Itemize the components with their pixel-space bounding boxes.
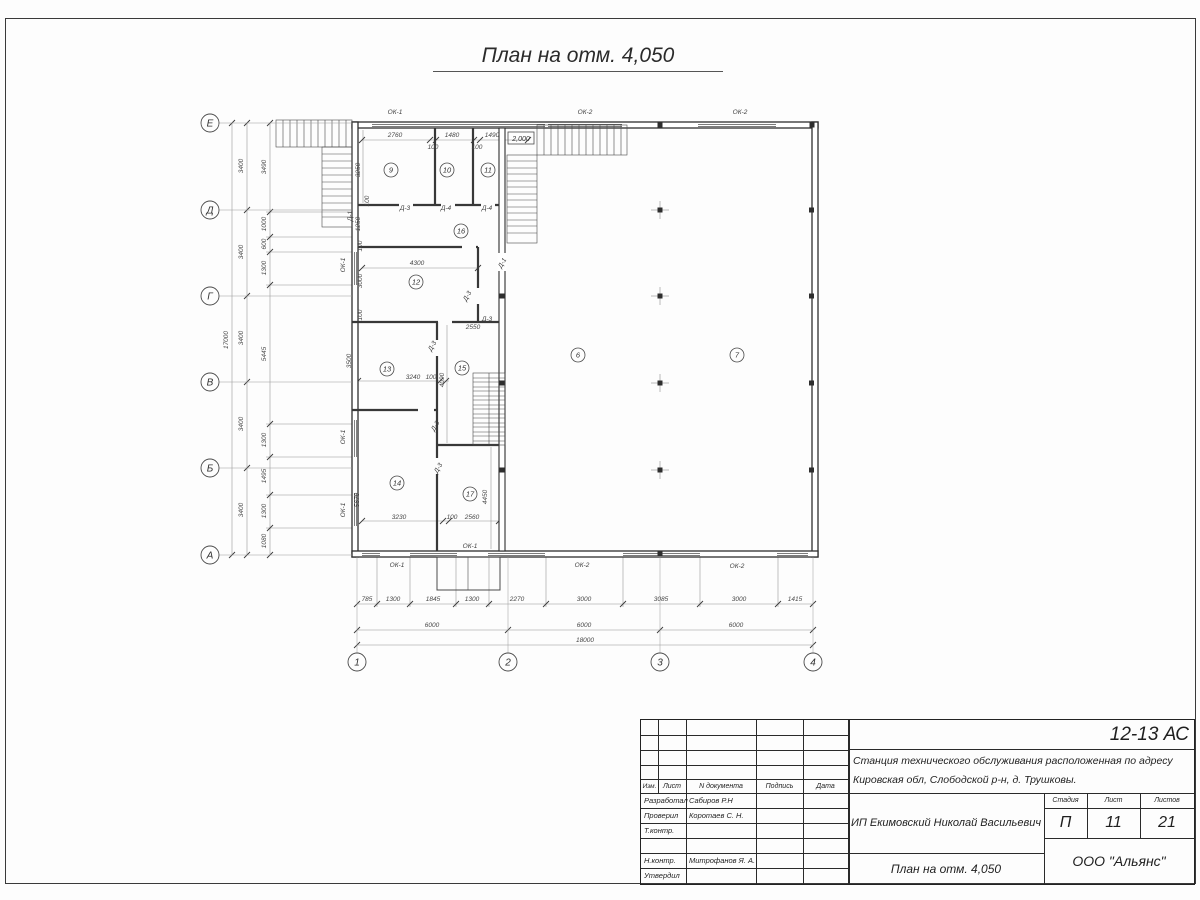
dim-label: 2550 <box>465 324 481 331</box>
dim-label: 3000 <box>732 596 747 603</box>
dim-label: ОК-1 <box>340 429 347 444</box>
dim-label: 3230 <box>392 514 407 521</box>
dim-label: 100 <box>472 144 483 151</box>
dim-label: 5445 <box>261 346 268 361</box>
dim-label: 100 <box>357 240 364 251</box>
tb-company: ООО "Альянс" <box>1044 838 1194 884</box>
axis-number: 4 <box>810 658 816 669</box>
dimension-ticks <box>229 120 816 648</box>
columns <box>500 123 815 556</box>
dim-label: 600 <box>261 238 268 249</box>
tb-doc-line2: Кировская обл, Слободской р-н, д. Трушко… <box>853 770 1191 790</box>
tb-name-0: Сабиров Р.Н <box>689 793 755 808</box>
dim-label: 2560 <box>464 514 480 521</box>
dim-label: 4090 <box>439 372 446 387</box>
dim-label: 1300 <box>261 432 268 447</box>
dim-label: ОК-1 <box>390 562 405 569</box>
room-number: 7 <box>735 351 740 360</box>
dim-label: 6000 <box>729 622 744 629</box>
dim-label: 1415 <box>788 596 803 603</box>
dim-label: ОК-1 <box>463 543 478 550</box>
tb-sheet-number: 11 <box>1087 808 1140 838</box>
dim-label: 3400 <box>238 244 245 259</box>
dim-label: 1300 <box>261 260 268 275</box>
axis-number: 3 <box>657 658 663 669</box>
dim-label: 3240 <box>406 374 421 381</box>
dim-label: Д-3 <box>481 316 493 323</box>
tb-doc-line1: Станция технического обслуживания распол… <box>853 751 1191 771</box>
dim-label: 1300 <box>465 596 480 603</box>
dim-label: Д-3 <box>433 462 445 476</box>
tb-role-2: Т.контр. <box>644 823 686 838</box>
room-number: 13 <box>383 365 392 374</box>
tb-name-2 <box>689 823 755 838</box>
dim-label: ОК-2 <box>575 562 590 569</box>
stair-exterior <box>276 120 352 227</box>
dim-label: 100 <box>447 514 458 521</box>
tb-col-date: Дата <box>803 779 848 793</box>
tb-line <box>803 720 804 884</box>
room-number: 9 <box>389 166 394 175</box>
dim-label: Д-3 <box>427 340 439 354</box>
title-block: Изм. Лист N документа Подпись Дата Разра… <box>640 719 1195 885</box>
room-number: 6 <box>576 351 581 360</box>
dim-label: 100 <box>357 309 364 320</box>
room-number: 14 <box>393 479 401 488</box>
tb-col-izm: Изм. <box>641 779 658 793</box>
dim-label: 3400 <box>238 416 245 431</box>
dim-label: 18000 <box>576 637 594 644</box>
axis-markers: ЕДГВБА1234 <box>201 114 822 671</box>
tb-line <box>641 750 848 751</box>
tb-sheets-total: 21 <box>1140 808 1194 838</box>
dim-label: ОК-2 <box>730 563 745 570</box>
tb-role-0: Разработал <box>644 793 686 808</box>
room-number: 16 <box>457 227 466 236</box>
dim-label: 2270 <box>509 596 525 603</box>
room-number: 10 <box>443 166 452 175</box>
dim-label: 1300 <box>261 503 268 518</box>
dim-label: 1300 <box>386 596 401 603</box>
elevation-mark: 2,000 <box>511 136 530 143</box>
axis-letter: А <box>206 551 214 562</box>
tb-col-list: Лист <box>658 779 686 793</box>
dim-label: 3400 <box>238 330 245 345</box>
room-number: 15 <box>458 364 467 373</box>
dim-label: 2760 <box>387 132 403 139</box>
tb-name-5 <box>689 868 755 883</box>
room-number: 17 <box>466 490 475 499</box>
tb-client: ИП Екимовский Николай Васильевич <box>848 793 1044 853</box>
dim-label: 1490 <box>485 132 500 139</box>
dim-label: Д-4 <box>481 205 493 212</box>
dim-label: 3250 <box>355 162 362 177</box>
tb-drawing-name: План на отм. 4,050 <box>848 853 1044 884</box>
axis-letter: Е <box>207 119 214 130</box>
tb-role-3 <box>644 838 686 853</box>
dim-label: 785 <box>362 596 373 603</box>
dim-label: 3400 <box>238 502 245 517</box>
partitions <box>352 128 499 551</box>
tb-role-5: Утвердил <box>644 868 686 883</box>
dim-label: ОК-1 <box>388 109 403 116</box>
dim-label: Д-3 <box>462 290 474 304</box>
dim-label: 4450 <box>482 489 489 504</box>
axis-letter: Г <box>207 292 214 303</box>
dim-label: 100 <box>428 144 439 151</box>
dim-label: ОК-2 <box>733 109 748 116</box>
dim-label: 4300 <box>410 260 425 267</box>
dim-label: 6000 <box>425 622 440 629</box>
dim-label: 1080 <box>261 533 268 548</box>
tb-stage-label: Стадия <box>1044 793 1087 808</box>
dim-label: 1845 <box>426 596 441 603</box>
axis-letter: Б <box>207 464 214 475</box>
dim-label: 17000 <box>223 331 230 349</box>
dim-label: ОК-1 <box>340 257 347 272</box>
windows <box>353 123 808 556</box>
dim-label: Д-3 <box>399 205 411 212</box>
tb-line <box>756 720 757 884</box>
dim-label: 3000 <box>357 273 364 288</box>
outer-walls <box>352 122 818 557</box>
tb-sheets-label: Листов <box>1140 793 1194 808</box>
dim-label: 1480 <box>445 132 460 139</box>
tb-doc-code: 12-13 АС <box>851 720 1189 749</box>
axis-number: 2 <box>504 658 511 669</box>
dim-label: 1250 <box>355 216 362 231</box>
axis-number: 1 <box>354 658 360 669</box>
room-number: 12 <box>412 278 421 287</box>
tb-stage-value: П <box>1044 808 1087 838</box>
tb-name-3 <box>689 838 755 853</box>
tb-col-ndoc: N документа <box>686 779 756 793</box>
dim-label: 5670 <box>354 492 361 507</box>
dim-label: Д-3 <box>430 420 442 434</box>
inner-wall <box>498 128 507 551</box>
room-number: 11 <box>484 166 492 175</box>
dim-label: 1495 <box>261 468 268 483</box>
drawing-sheet: План на отм. 4,050 <box>0 0 1200 900</box>
tb-name-1: Коротаев С. Н. <box>689 808 755 823</box>
dim-label: 3400 <box>238 158 245 173</box>
tb-sheet-label: Лист <box>1087 793 1140 808</box>
axis-letter: В <box>207 378 214 389</box>
dimension-lines <box>232 123 813 645</box>
dim-label: 6000 <box>577 622 592 629</box>
tb-role-4: Н.контр. <box>644 853 686 868</box>
entrance-porch <box>437 557 500 590</box>
tb-line <box>641 735 848 736</box>
dim-label: 100 <box>364 195 371 206</box>
dim-label: Д-1 <box>347 210 354 222</box>
tb-role-1: Проверил <box>644 808 686 823</box>
plan-labels: 7851300184513002270300030853000141560006… <box>223 109 803 644</box>
tb-col-sign: Подпись <box>756 779 803 793</box>
dim-label: 3085 <box>654 596 669 603</box>
dim-label: Д-4 <box>440 205 452 212</box>
dim-label: 3000 <box>577 596 592 603</box>
dim-label: 1000 <box>261 216 268 231</box>
dim-label: ОК-1 <box>340 502 347 517</box>
dim-label: 100 <box>426 374 437 381</box>
axis-letter: Д <box>205 206 213 217</box>
dim-label: 3490 <box>261 159 268 174</box>
tb-line <box>641 765 848 766</box>
tb-name-4: Митрофанов Я. А. <box>689 853 755 868</box>
dim-label: 3500 <box>346 353 353 368</box>
dim-label: ОК-2 <box>578 109 593 116</box>
